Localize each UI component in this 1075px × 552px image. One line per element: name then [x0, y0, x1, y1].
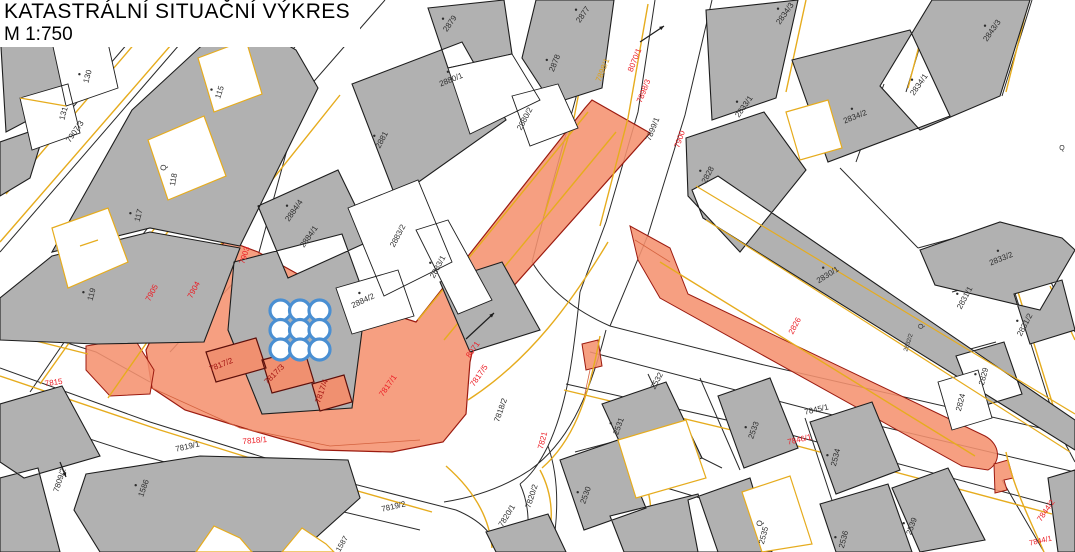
parcel-centroid-dot: [974, 373, 976, 375]
parcel-centroid-dot: [129, 212, 131, 214]
parcel-centroid-dot: [286, 205, 288, 207]
parcel-centroid-dot: [442, 18, 444, 20]
cadastral-map-page: 1301317907/3115Q118117119287928772878288…: [0, 0, 1075, 552]
circle-grid-symbol: [270, 300, 291, 321]
parcel-centroid-dot: [699, 170, 701, 172]
parcel-centroid-dot: [956, 293, 958, 295]
title-block: KATASTRÁLNÍ SITUAČNÍ VÝKRES M 1:750: [0, 0, 360, 47]
parcel-centroid-dot: [577, 491, 579, 493]
parcel-centroid-dot: [358, 292, 360, 294]
parcel-centroid-dot: [575, 9, 577, 11]
circle-grid-symbol: [309, 320, 330, 341]
parcel-centroid-dot: [429, 262, 431, 264]
parcel-centroid-dot: [911, 79, 913, 81]
parcel-centroid-dot: [82, 291, 84, 293]
parcel-centroid-dot: [822, 267, 824, 269]
circle-grid-symbol: [270, 339, 291, 360]
parcel-centroid-dot: [777, 8, 779, 10]
map-scale: M 1:750: [4, 24, 350, 45]
page-title: KATASTRÁLNÍ SITUAČNÍ VÝKRES: [4, 0, 350, 24]
circle-grid-symbol: [309, 300, 330, 321]
parcel-centroid-dot: [373, 135, 375, 137]
parcel-centroid-dot: [997, 250, 999, 252]
cadastral-map-canvas: 1301317907/3115Q118117119287928772878288…: [0, 0, 1075, 552]
parcel-centroid-dot: [736, 101, 738, 103]
parcel-label: Q: [1059, 145, 1065, 152]
circle-grid-symbol: [290, 339, 311, 360]
parcel-centroid-dot: [745, 426, 747, 428]
circle-grid-symbol: [270, 320, 291, 341]
parcel-centroid-dot: [851, 108, 853, 110]
parcel-centroid-dot: [903, 522, 905, 524]
parcel-centroid-dot: [834, 536, 836, 538]
parcel-centroid-dot: [78, 73, 80, 75]
parcel-centroid-dot: [610, 422, 612, 424]
circle-grid-symbol: [290, 320, 311, 341]
parcel-centroid-dot: [1016, 320, 1018, 322]
parcel-centroid-dot: [210, 88, 212, 90]
parcel-centroid-dot: [546, 59, 548, 61]
parcel-centroid-dot: [447, 71, 449, 73]
parcel-centroid-dot: [135, 484, 137, 486]
circle-grid-symbol: [309, 339, 330, 360]
circle-grid-symbol: [290, 300, 311, 321]
parcel-centroid-dot: [826, 454, 828, 456]
parcel-centroid-dot: [984, 25, 986, 27]
